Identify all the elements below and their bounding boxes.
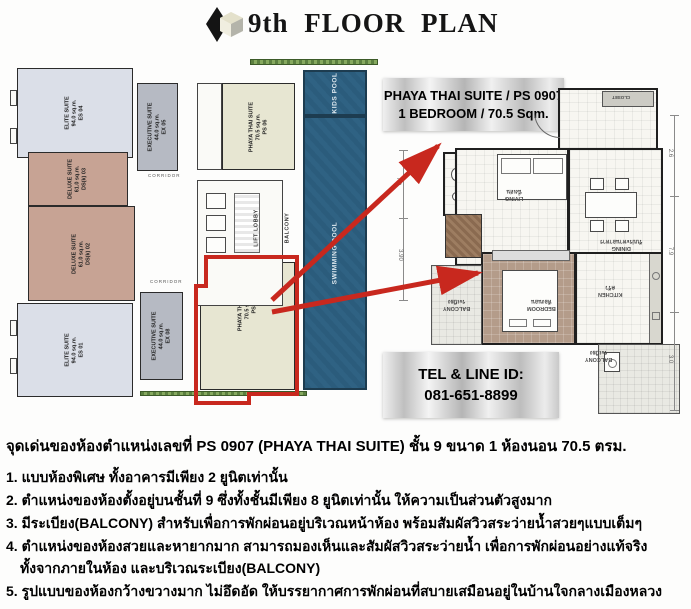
chair-icon: [590, 220, 604, 232]
dimension-value: 7.9: [395, 177, 401, 185]
dimension-line: [674, 115, 675, 410]
contact-label: TEL & LINE ID:: [418, 366, 524, 383]
edge-balcony: [10, 90, 17, 106]
callout-title: PHAYA THAI SUITE / PS 0907: [384, 88, 563, 103]
page-title: 9th FLOOR PLAN: [248, 8, 499, 39]
dimension-line: [403, 150, 404, 300]
kitchen-counter-icon: [649, 254, 661, 343]
description-line-5: 5. รูปแบบของห้องกว้างขวางมาก ไม่อึดอัด ใ…: [6, 581, 662, 603]
pillow-icon: [533, 319, 551, 327]
planter-strip: [140, 391, 307, 396]
balcony-front-label: BALCONY ระเบียง: [443, 296, 470, 311]
dimension-value: 7.9: [667, 247, 673, 255]
dimension-value: 3.90: [397, 249, 403, 261]
dimension-tick: [399, 150, 408, 151]
unit-ds02: DELUXE SUITE 61.0 sq.m. DS(k) 02: [28, 206, 135, 301]
unit-es01: ELITE SUITE 94.0 sq.m. ES 01: [17, 303, 133, 397]
wardrobe-block: [445, 214, 482, 258]
unit-es04-label: ELITE SUITE 94.0 sq.m. ES 04: [64, 96, 85, 129]
description-line-2: 2. ตำแหน่งของห้องตั้งอยู่บนชั้นที่ 9 ซึ่…: [6, 490, 552, 512]
unit-ex05: EXECUTIVE SUITE 44.0 sq.m. EX 05: [137, 83, 178, 171]
chair-icon: [590, 178, 604, 190]
floor-plan-flyer: 9th FLOOR PLAN ELITE SUITE 94.0 sq.m. ES…: [0, 0, 691, 609]
living-label: LIVING นั่งเล่น: [505, 186, 523, 201]
corridor-label: CORRIDOR: [150, 279, 183, 284]
unit-ps06: PHAYA THAI SUITE 70.5 sq.m. PS 06: [222, 83, 295, 170]
kids-pool-label: KIDS POOL: [332, 72, 339, 113]
description-line-1: 1. แบบห้องพิเศษ ทั้งอาคารมีเพียง 2 ยูนิต…: [6, 467, 288, 489]
sofa-cushion: [501, 158, 531, 174]
contact-phone: 081-651-8899: [424, 387, 517, 404]
planter-strip: [250, 59, 378, 65]
chair-icon: [615, 220, 629, 232]
dimension-tick: [670, 115, 679, 116]
swimming-pool-label: SWIMMING POOL: [332, 222, 339, 285]
kitchen-label: KITCHEN ครัว: [598, 282, 622, 297]
dimension-tick: [670, 196, 679, 197]
unit-ex08: EXECUTIVE SUITE 44.0 sq.m. EX 08: [140, 292, 183, 380]
unit-ex05-label: EXECUTIVE SUITE 44.0 sq.m. EX 05: [147, 103, 168, 152]
unit-ds03: DELUXE SUITE 61.0 sq.m. DS(k) 03: [28, 152, 128, 206]
dimension-tick: [670, 410, 679, 411]
description-line-4: 4. ตำแหน่งของห้องสวยและหายากมาก สามารถมอ…: [6, 536, 647, 558]
description-headline: จุดเด่นของห้องตำแหน่งเลขที่ PS 0907 (PHA…: [6, 434, 627, 458]
pillow-icon: [509, 319, 527, 327]
chair-icon: [615, 178, 629, 190]
sofa-cushion: [533, 158, 563, 174]
tv-cabinet-icon: [492, 250, 570, 261]
contact-box: TEL & LINE ID: 081-651-8899: [383, 352, 559, 418]
stove-icon: [652, 312, 660, 320]
closet-label: CLOSET: [612, 94, 630, 100]
kids-pool: KIDS POOL: [303, 70, 367, 116]
dining-label: DINING รับประทานอาหาร: [600, 236, 642, 251]
lift-lobby-label: LIFT LOBBY: [254, 209, 260, 246]
description-line-4b: ทั้งจากภายในห้อง และบริเวณระเบียง(BALCON…: [20, 558, 320, 580]
corridor-label: CORRIDOR: [148, 173, 181, 178]
lift-car-icon: [206, 237, 226, 253]
unit-ds03-label: DELUXE SUITE 61.0 sq.m. DS(k) 03: [67, 159, 88, 199]
unit-es01-label: ELITE SUITE 94.0 sq.m. ES 01: [64, 333, 85, 366]
dimension-value: 3.0: [667, 355, 673, 363]
bedroom-label: BEDROOM ห้องนอน: [527, 296, 556, 311]
dimension-tick: [399, 300, 408, 301]
dimension-tick: [670, 312, 679, 313]
edge-balcony: [10, 320, 17, 336]
unit-ps06-label: PHAYA THAI SUITE 70.5 sq.m. PS 06: [248, 101, 269, 151]
dimension-value: 2.6: [667, 149, 673, 157]
unit-ex08-label: EXECUTIVE SUITE 44.0 sq.m. EX 08: [151, 312, 172, 361]
sink-icon: [652, 272, 660, 280]
callout-subtitle: 1 BEDROOM / 70.5 Sqm.: [398, 106, 548, 121]
unit-es04: ELITE SUITE 94.0 sq.m. ES 04: [17, 68, 133, 158]
balcony-strip-label: BALCONY: [284, 213, 290, 244]
lift-car-icon: [206, 193, 226, 209]
edge-balcony: [10, 358, 17, 374]
swimming-pool: SWIMMING POOL: [303, 116, 367, 390]
bath-core: [197, 83, 222, 170]
lift-core: [197, 180, 283, 306]
description-line-3: 3. มีระเบียง(BALCONY) สำหรับเพื่อการพักผ…: [6, 513, 642, 535]
dining-table-icon: [585, 192, 637, 218]
door-swing-icon: [534, 112, 560, 138]
unit-ds02-label: DELUXE SUITE 61.0 sq.m. DS(k) 02: [71, 233, 92, 273]
developer-logo-icon: [205, 6, 245, 44]
dimension-tick: [399, 218, 408, 219]
lift-car-icon: [206, 215, 226, 231]
edge-balcony: [10, 128, 17, 144]
balcony-service-label: BALCONY ระเบียง: [585, 347, 612, 362]
